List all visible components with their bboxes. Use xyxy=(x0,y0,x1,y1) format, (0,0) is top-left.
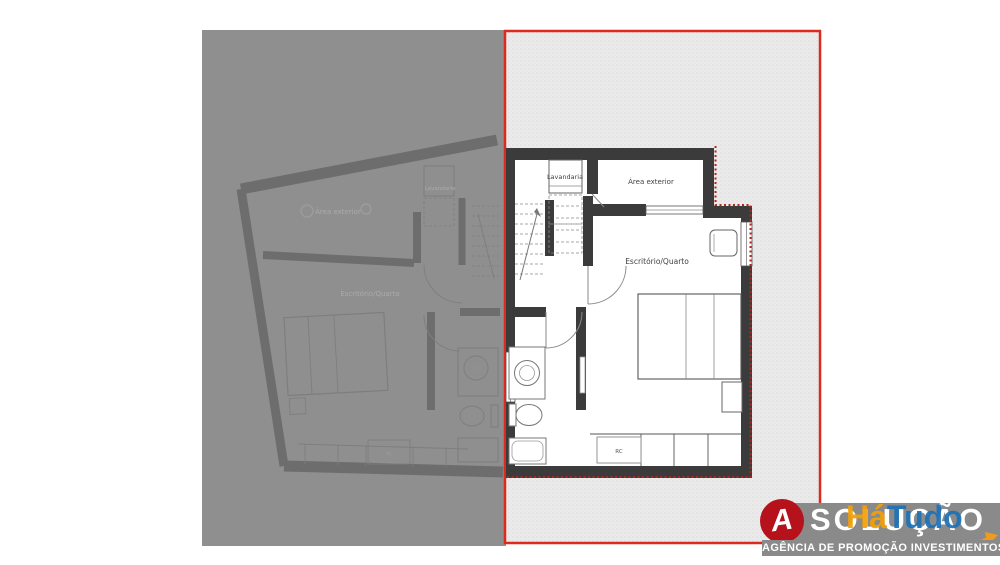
closet-label: RC xyxy=(615,449,623,455)
ghost-label-closet: RC xyxy=(386,451,392,457)
label-office: Escritório/Quarto xyxy=(625,257,689,266)
wall-exterior-room xyxy=(587,204,646,216)
ghost-label-laundry: Lavandaria xyxy=(425,186,456,192)
toilet-icon xyxy=(516,405,542,426)
wall-top xyxy=(506,148,714,160)
nightstand-icon xyxy=(722,382,742,412)
label-laundry: Lavandaria xyxy=(547,173,583,181)
logo-word-ha: Há xyxy=(846,499,887,535)
ghost-label-office: Escritório/Quarto xyxy=(340,290,399,298)
wall-stair-left xyxy=(545,200,554,256)
toilet-tank xyxy=(509,404,516,426)
ghost-wall-bottom xyxy=(284,466,503,472)
wall-laundry-divider xyxy=(587,148,598,194)
logo-tagline: AGÊNCIA DE PROMOÇÃO INVESTIMENTOS xyxy=(762,540,1000,556)
label-exterior: Área exterior xyxy=(628,177,674,186)
shower-screen xyxy=(580,357,585,393)
agency-logo: SOLUÇÃO HáTudo A AGÊNCIA DE PROMOÇÃO INV… xyxy=(758,497,1000,559)
wall-hall-right xyxy=(583,196,593,266)
wall-step-vertical xyxy=(703,148,714,210)
floorplan-page: Área exterior Escritório/Quarto Lavandar… xyxy=(0,0,1000,565)
logo-badge: A xyxy=(760,499,804,543)
ghost-label-exterior: Área exterior xyxy=(315,207,361,216)
bed-icon xyxy=(638,294,741,379)
floorplan-graphic: Área exterior Escritório/Quarto Lavandar… xyxy=(0,0,1000,565)
active-floorplan: RC Lavandaria Área exterior Escritório/Q… xyxy=(506,146,752,478)
wall-bath-top xyxy=(506,307,546,317)
logo-word-tudo: Tudo xyxy=(887,499,963,535)
logo-monogram: A xyxy=(769,503,795,540)
